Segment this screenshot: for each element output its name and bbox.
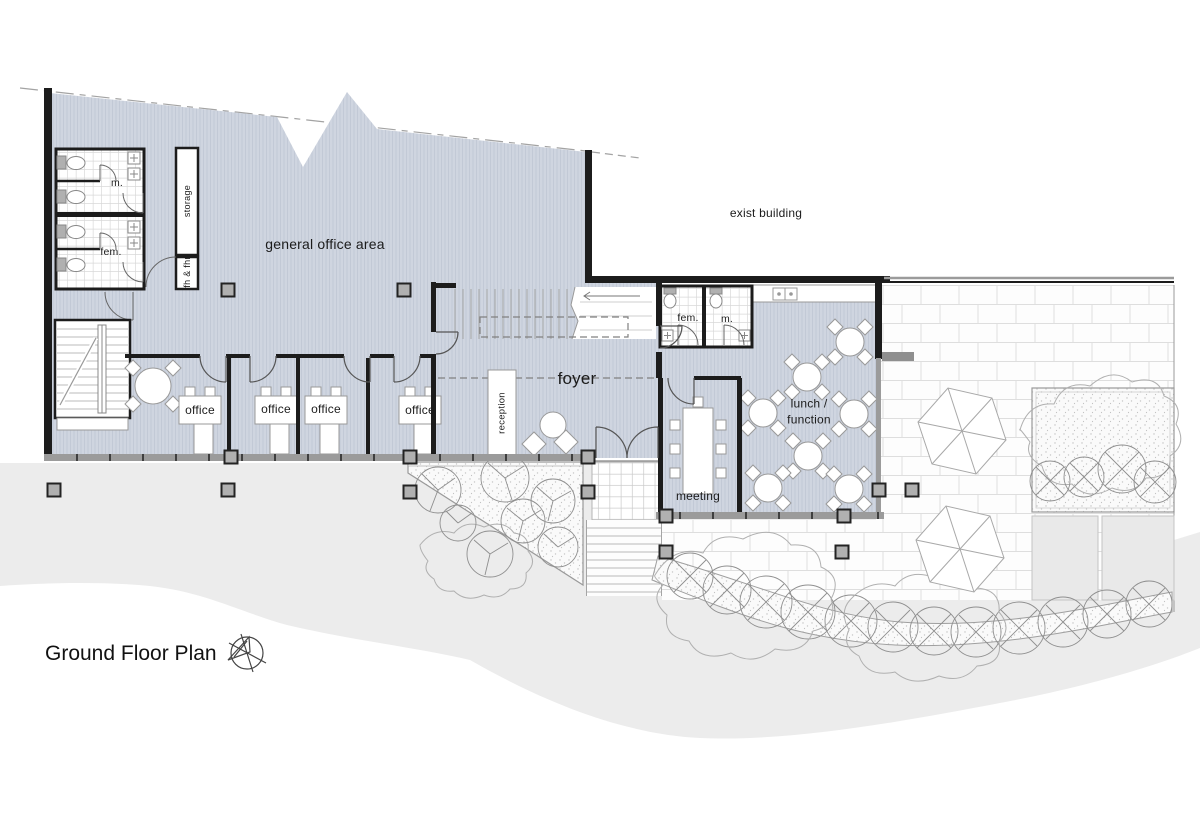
kitchen-counter	[752, 285, 877, 302]
label-office-2: office	[261, 402, 291, 416]
north-arrow-icon	[228, 634, 266, 672]
label-general-office-area: general office area	[265, 236, 385, 252]
floor-plan-drawing	[0, 0, 1200, 828]
label-function-female-toilet: fem.	[677, 312, 698, 324]
label-fire-hose: fh & fhr	[182, 256, 192, 287]
label-foyer: foyer	[558, 369, 597, 389]
label-office-3: office	[311, 402, 341, 416]
label-storage: storage	[182, 185, 192, 217]
label-office-1: office	[185, 403, 215, 417]
ground-floor-plan: general office area exist building m. fe…	[0, 0, 1200, 828]
label-male-toilet: m.	[111, 177, 123, 189]
entry-steps	[586, 520, 662, 596]
main-stair	[55, 320, 130, 430]
label-female-toilet: fem.	[100, 246, 121, 258]
label-function-male-toilet: m.	[721, 313, 733, 325]
label-meeting: meeting	[676, 489, 720, 503]
page-title: Ground Floor Plan	[45, 642, 217, 666]
label-exist-building: exist building	[730, 206, 802, 220]
function-toilets	[660, 286, 752, 347]
garden-bed-right	[1032, 388, 1174, 512]
entry-landing	[592, 462, 660, 520]
label-office-4: office	[405, 403, 435, 417]
label-lunch-function: lunch / function	[776, 396, 842, 427]
paving-panels	[1032, 516, 1174, 600]
label-reception: reception	[497, 392, 508, 434]
